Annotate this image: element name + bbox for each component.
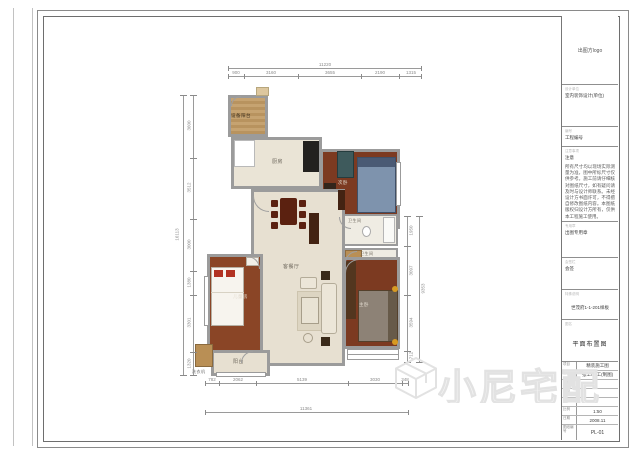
row-label: 日期 [562, 416, 577, 424]
dim-line-left-overall [183, 95, 184, 375]
dim-label: 3030 [363, 377, 387, 382]
dim-label: 3000 [187, 232, 192, 258]
dim-label: 3512 [187, 175, 192, 201]
cube-logo-icon [393, 356, 439, 400]
blanket-line [211, 292, 244, 293]
dim-tick [205, 410, 206, 415]
bed-bedroom2 [357, 157, 396, 213]
dim-tick [348, 381, 349, 386]
drawing-sheet: 设备阳台 厨房 次卧 卫生间 卫生间 客餐厅 主卧 [0, 0, 640, 452]
dim-tick [190, 375, 197, 376]
unit-header: 设计单位 [565, 87, 615, 92]
binding-margin-line [13, 8, 14, 446]
titleblock-drawing-name-section: 图名 平面布置图 [562, 320, 618, 362]
window [204, 276, 209, 326]
notes-header: 注意事项 [565, 149, 615, 154]
washer-box [195, 344, 213, 367]
dim-label: 3301 [187, 310, 192, 336]
dim-tick [228, 66, 229, 71]
dim-line-top-segments [228, 76, 422, 77]
dim-tick [404, 216, 411, 217]
coffee-table [301, 297, 319, 324]
room-living-dining [251, 189, 345, 366]
sofa [321, 283, 337, 334]
row-label: 比例 [562, 407, 577, 415]
dim-line-left-segments [193, 95, 194, 375]
countersign-label: 会签 [565, 266, 615, 272]
titleblock-countersign-section: 会签栏 会签 [562, 258, 618, 290]
special-header: 特殊说明 [565, 292, 615, 297]
row-value: 2008.11 [577, 416, 618, 424]
dim-tick [361, 74, 362, 79]
hall-cabinet [338, 190, 345, 210]
titleblock-special-section: 特殊说明 世茂府1-1-201样板 [562, 290, 618, 320]
dim-tick [190, 219, 197, 220]
flue-box [256, 87, 269, 96]
dim-tick [190, 95, 197, 96]
dim-tick [399, 74, 400, 79]
dim-tick [205, 381, 206, 386]
titleblock-unit-section: 设计单位 室内装饰设计(单位) [562, 85, 618, 127]
dim-label: 1950 [409, 218, 414, 244]
dim-tick [244, 74, 245, 79]
fridge [303, 141, 319, 172]
binding-margin-line [32, 8, 33, 446]
dining-chair [271, 200, 278, 207]
dining-chair [271, 211, 278, 218]
bath-vanity [383, 217, 395, 243]
drawing-name-header: 图名 [565, 322, 615, 327]
dim-tick [408, 410, 409, 415]
room-label-equip-balcony: 设备阳台 [231, 113, 251, 119]
dim-label: 782 [200, 377, 224, 382]
dim-label: 3097 [409, 258, 414, 284]
dim-line-bottom-segments [205, 383, 408, 384]
dim-label: 2062 [226, 377, 250, 382]
dim-tick [190, 271, 197, 272]
dim-label: 11361 [294, 406, 318, 411]
dim-tick [298, 74, 299, 79]
company-logo-text: 出图方logo [578, 47, 602, 54]
dim-label: 3600 [187, 113, 192, 139]
project-no-value: 工程编号 [565, 135, 615, 141]
special-value: 世茂府1-1-201样板 [565, 305, 615, 311]
drawing-name-value: 平面布置图 [565, 339, 615, 348]
dim-tick [190, 352, 197, 353]
dim-tick [219, 381, 220, 386]
pillow [226, 270, 235, 277]
dim-label: 11220 [313, 62, 337, 67]
nightstand-lamp [392, 286, 398, 292]
dim-tick [190, 158, 197, 159]
dim-tick [421, 66, 422, 71]
notes-text: 所有尺寸均以现场实际测量为准，图中所标尺寸仅供参考。施工前请仔细核对图纸尺寸，如… [565, 164, 615, 220]
side-table [321, 271, 330, 280]
titleblock-stamp-section: 专用章 出图专用章 [562, 222, 618, 258]
dim-line-bottom-overall [205, 412, 408, 413]
bay-window [347, 349, 399, 360]
titleblock-logo-section: 出图方logo [562, 16, 618, 85]
room-label-kitchen: 厨房 [272, 158, 283, 165]
project-no-header: 编号 [565, 129, 615, 134]
dim-tick [180, 375, 187, 376]
dim-label: 1315 [399, 70, 423, 75]
dim-tick [416, 216, 423, 217]
window [396, 162, 401, 206]
dim-tick [256, 381, 257, 386]
dining-chair [299, 222, 306, 229]
hall-cabinet [309, 213, 319, 244]
row-label: 图纸编号 [562, 425, 577, 440]
dim-label: 3594 [409, 310, 414, 336]
floor-lamp [303, 333, 313, 343]
dim-tick [404, 295, 411, 296]
bed-master [358, 290, 398, 342]
dim-tick [190, 295, 197, 296]
titleblock-notes-section: 注意事项 注意 所有尺寸均以现场实际测量为准，图中所标尺寸仅供参考。施工前请仔细… [562, 147, 618, 222]
watermark-text: 小尼宅配 [438, 357, 640, 403]
dim-tick [404, 246, 411, 247]
kitchen-counter [234, 140, 255, 167]
dining-chair [299, 211, 306, 218]
dining-table [280, 198, 297, 225]
stamp-label: 出图专用章 [565, 230, 615, 236]
dim-label: 3160 [259, 70, 283, 75]
dim-line-top-overall [228, 68, 422, 69]
countersign-header: 会签栏 [565, 260, 615, 265]
pillow [214, 270, 223, 277]
titleblock-project-section: 编号 工程编号 [562, 127, 618, 147]
nightstand-lamp [392, 339, 398, 345]
dim-label: 2190 [368, 70, 392, 75]
dim-tick [404, 351, 411, 352]
dim-label: 1380 [187, 270, 192, 296]
row-value: PL-01 [577, 425, 618, 440]
dim-tick [180, 95, 187, 96]
room-label-master: 主卧 [359, 302, 369, 308]
dim-label: 3655 [318, 70, 342, 75]
toilet [362, 226, 371, 237]
bed-pillow [358, 158, 395, 167]
armchair [300, 277, 317, 289]
room-label-living: 客餐厅 [283, 263, 300, 270]
dining-chair [299, 200, 306, 207]
table-row: 比例 1:50 [562, 407, 618, 416]
dim-label: 16113 [175, 222, 180, 248]
room-label-bedroom2: 次卧 [338, 180, 348, 186]
notes-label: 注意 [565, 155, 615, 161]
row-value: 1:50 [577, 407, 618, 415]
dim-label: 1320 [187, 351, 192, 377]
table-row: 日期 2008.11 [562, 416, 618, 425]
unit-name: 室内装饰设计(单位) [565, 93, 615, 99]
bed-pillow [388, 291, 397, 341]
appliance-cabinet [337, 151, 354, 178]
room-label-kids: 儿童房 [233, 294, 248, 300]
dim-label: 5139 [290, 377, 314, 382]
dim-tick [228, 74, 229, 79]
dim-tick [421, 74, 422, 79]
dining-chair [271, 222, 278, 229]
stamp-header: 专用章 [565, 224, 615, 229]
side-table [321, 337, 330, 346]
dim-label: 9353 [421, 276, 426, 302]
table-row: 图纸编号 PL-01 [562, 425, 618, 440]
